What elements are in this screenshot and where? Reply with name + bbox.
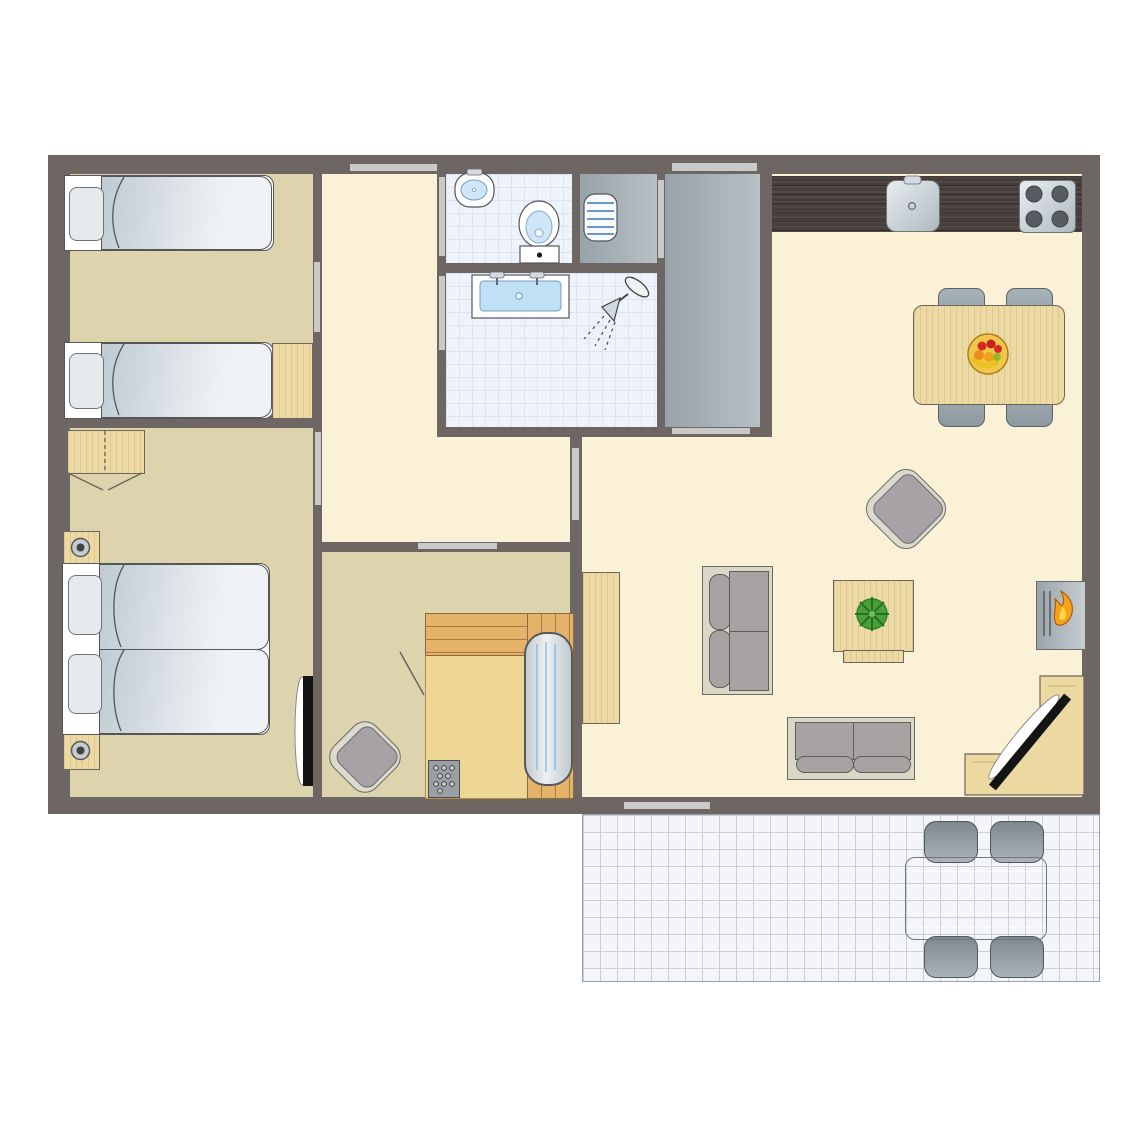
double-bed-pillow [68, 654, 102, 714]
loveseat-seat-cushion [853, 722, 911, 760]
wall-top [48, 155, 1100, 174]
sofa-seat-cushion [729, 631, 769, 691]
terrace-door [624, 802, 710, 809]
wall-right [1082, 155, 1100, 814]
loveseat-seat-cushion [795, 722, 854, 760]
single-bed-mattress [101, 343, 272, 418]
living-room-doorway [572, 448, 579, 520]
single-bed-mattress [101, 176, 272, 250]
entrance-hall-floor [665, 174, 760, 427]
hallway-floor-lower [322, 437, 570, 542]
bathroom-doorway [439, 276, 445, 350]
wall-toilet-utility-divider [572, 174, 580, 263]
nightstand [63, 733, 100, 770]
sauna-heater [428, 760, 460, 798]
entrance-door [672, 163, 757, 171]
wall-bottom [48, 797, 1100, 814]
entrance-hall-doorway [672, 428, 750, 434]
single-bed-pillow [69, 353, 104, 409]
cooktop [1019, 180, 1076, 233]
sofa-back-cushion [709, 630, 731, 688]
wall-entrance-right [760, 174, 772, 437]
double-bed-mattress-right [99, 649, 269, 734]
coffee-table [833, 580, 914, 652]
single-bed-pillow [69, 187, 104, 241]
wall-toilet-bath-divider [446, 263, 657, 273]
sofa-back-cushion [709, 574, 731, 630]
kitchen-sink [886, 180, 940, 232]
sofa-seat-cushion [729, 571, 769, 632]
outdoor-chair [924, 936, 978, 978]
double-bed-mattress-left [99, 564, 269, 650]
dining-table [913, 305, 1065, 405]
utility-room-floor [580, 174, 657, 263]
nightstand [63, 531, 100, 566]
toilet-doorway [439, 177, 445, 256]
bedroom-2-doorway [315, 432, 321, 505]
hallway-window [350, 164, 437, 171]
floorplan-canvas [0, 0, 1145, 1145]
wardrobe [67, 430, 145, 474]
loveseat-back-cushion [796, 756, 854, 773]
sideboard [582, 572, 620, 724]
toilet-room-floor [446, 174, 572, 263]
utility-doorway [658, 180, 664, 258]
coffee-table-shelf [843, 650, 904, 663]
outdoor-table [905, 857, 1047, 940]
bedroom-1-doorway [314, 262, 320, 332]
sauna-room-doorway [418, 543, 497, 549]
fireplace [1036, 581, 1086, 650]
double-bed-pillow [68, 575, 102, 635]
loveseat-back-cushion [853, 756, 911, 773]
sauna-lounger [524, 632, 573, 786]
outdoor-chair [990, 936, 1044, 978]
bathroom-floor [446, 273, 657, 427]
nightstand [272, 343, 313, 419]
